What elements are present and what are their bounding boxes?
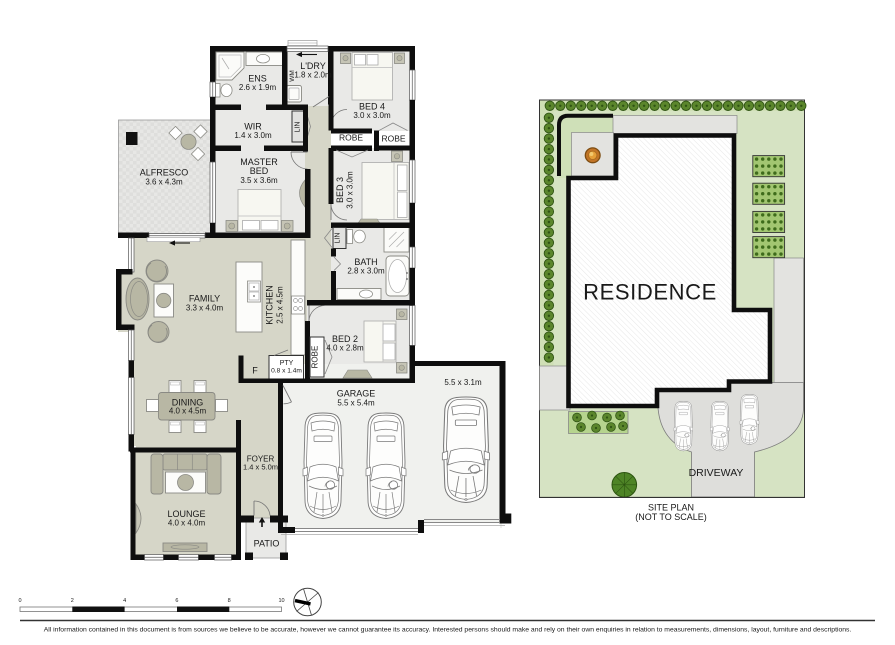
svg-text:5.5 x 3.1m: 5.5 x 3.1m <box>444 378 482 387</box>
svg-text:(NOT TO SCALE): (NOT TO SCALE) <box>635 512 707 522</box>
svg-text:4: 4 <box>123 598 126 604</box>
svg-text:10: 10 <box>278 598 284 604</box>
svg-text:0: 0 <box>18 598 21 604</box>
svg-text:3.5 x 3.6m: 3.5 x 3.6m <box>240 176 278 185</box>
svg-text:2: 2 <box>71 598 74 604</box>
svg-text:3.0 x 3.0m: 3.0 x 3.0m <box>346 171 355 209</box>
svg-text:SITE PLAN: SITE PLAN <box>648 503 694 513</box>
svg-text:LOUNGE: LOUNGE <box>167 509 205 519</box>
svg-text:ROBE: ROBE <box>311 346 320 369</box>
svg-text:KITCHEN: KITCHEN <box>265 285 275 325</box>
svg-text:4.0 x 4.0m: 4.0 x 4.0m <box>168 519 206 528</box>
svg-text:BED: BED <box>250 166 269 176</box>
svg-text:BED 4: BED 4 <box>359 102 385 112</box>
svg-text:1.8 x 2.0m: 1.8 x 2.0m <box>294 71 332 80</box>
svg-text:PTY: PTY <box>280 360 294 367</box>
svg-text:RESIDENCE: RESIDENCE <box>583 280 717 305</box>
svg-text:PATIO: PATIO <box>254 539 280 549</box>
svg-text:ALFRESCO: ALFRESCO <box>140 168 189 178</box>
svg-text:1.4 x 3.0m: 1.4 x 3.0m <box>234 131 272 140</box>
svg-text:WM: WM <box>289 70 296 82</box>
svg-text:F: F <box>252 366 258 376</box>
svg-text:3.3 x 4.0m: 3.3 x 4.0m <box>186 304 224 313</box>
svg-text:ROBE: ROBE <box>339 133 363 143</box>
svg-text:4.0 x 2.8m: 4.0 x 2.8m <box>326 344 364 353</box>
svg-text:3.0 x 3.0m: 3.0 x 3.0m <box>353 111 391 120</box>
svg-text:WIR: WIR <box>244 122 262 132</box>
svg-text:2.5 x 4.5m: 2.5 x 4.5m <box>276 286 285 324</box>
svg-text:BATH: BATH <box>354 257 377 267</box>
svg-text:GARAGE: GARAGE <box>337 389 376 399</box>
svg-text:3.6 x 4.3m: 3.6 x 4.3m <box>145 178 183 187</box>
svg-text:FAMILY: FAMILY <box>189 294 220 304</box>
svg-text:BED 2: BED 2 <box>332 334 358 344</box>
svg-text:8: 8 <box>228 598 231 604</box>
svg-text:0.8 x 1.4m: 0.8 x 1.4m <box>271 368 302 375</box>
svg-text:6: 6 <box>175 598 178 604</box>
svg-text:L'DRY: L'DRY <box>300 61 326 71</box>
svg-text:ENS: ENS <box>248 74 267 84</box>
svg-text:ROBE: ROBE <box>381 134 405 144</box>
svg-text:2.8 x 3.0m: 2.8 x 3.0m <box>347 267 385 276</box>
svg-text:1.4 x 5.0m: 1.4 x 5.0m <box>243 463 278 472</box>
svg-text:LIN: LIN <box>335 233 342 244</box>
svg-text:2.6 x 1.9m: 2.6 x 1.9m <box>239 83 277 92</box>
svg-text:LIN: LIN <box>295 122 302 133</box>
svg-text:BED 3: BED 3 <box>335 177 345 203</box>
svg-text:All information contained in t: All information contained in this docume… <box>44 627 852 634</box>
svg-text:DRIVEWAY: DRIVEWAY <box>689 467 744 479</box>
svg-text:4.0 x 4.5m: 4.0 x 4.5m <box>169 407 207 416</box>
svg-text:5.5 x 5.4m: 5.5 x 5.4m <box>337 399 375 408</box>
